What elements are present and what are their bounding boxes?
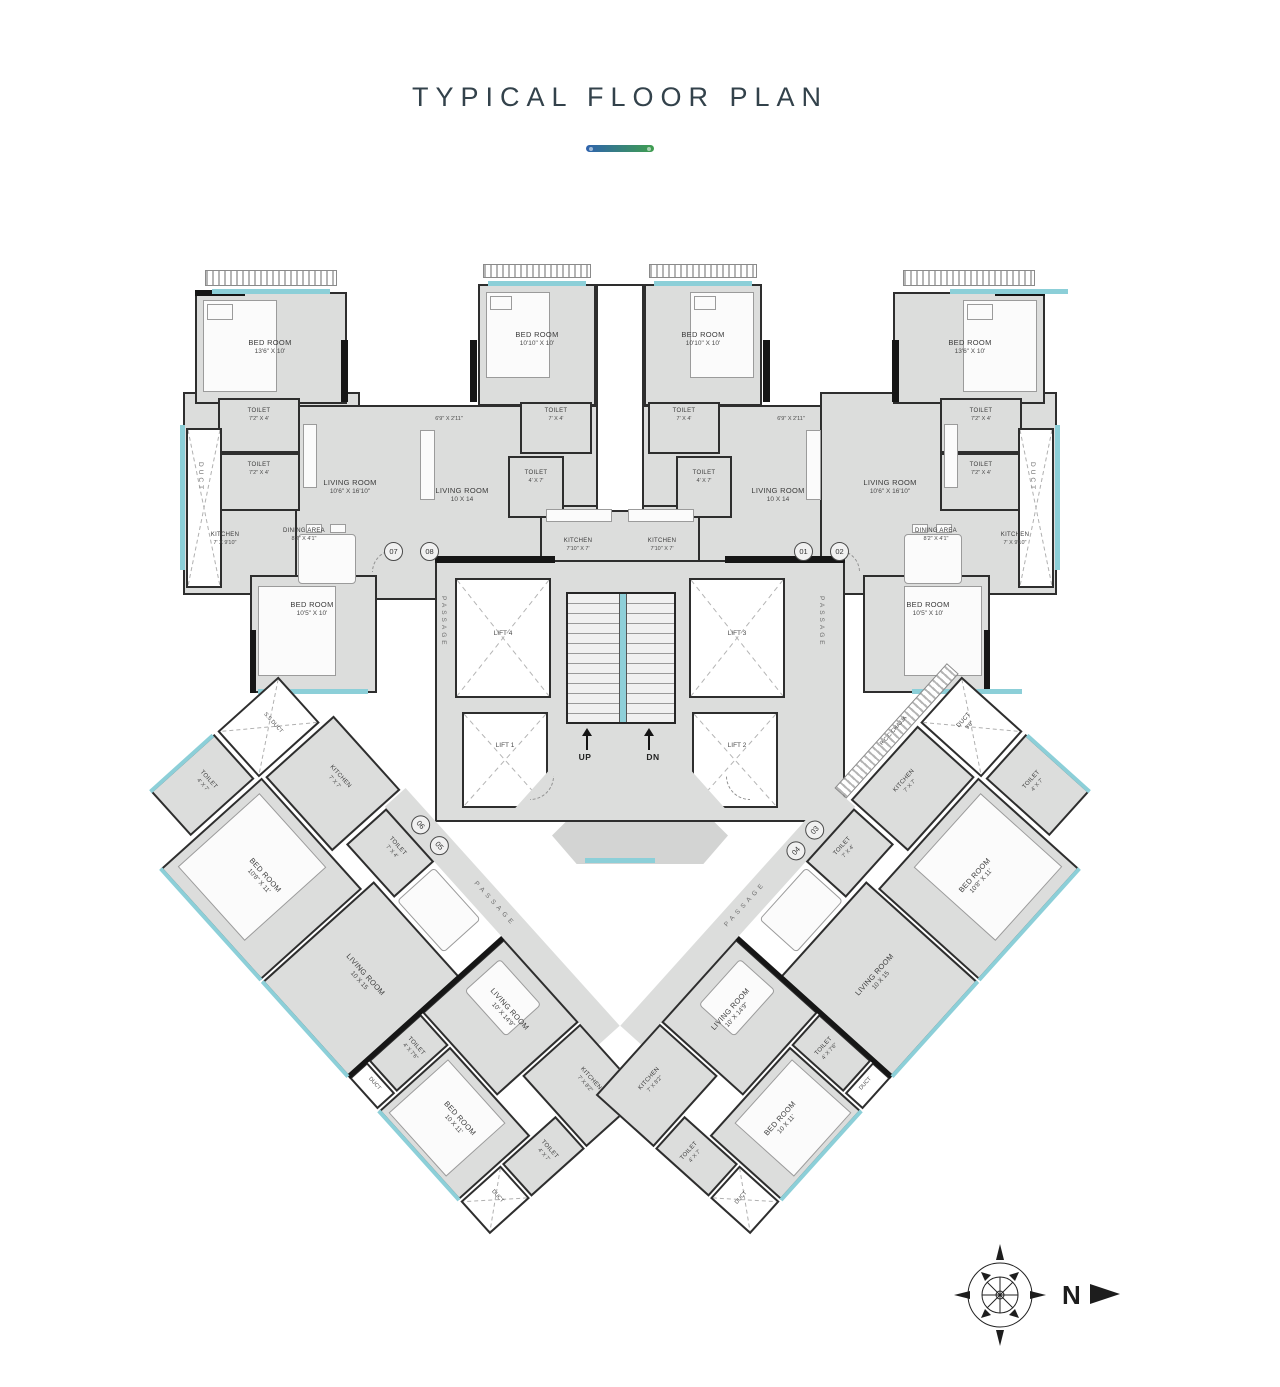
- chajja-hatch: [483, 264, 591, 278]
- duct-cross-icon: [1020, 430, 1052, 586]
- room-u07-toilet-a: [218, 398, 300, 453]
- title-divider: [586, 145, 654, 152]
- room-lift-3: [689, 578, 785, 698]
- bed: [963, 300, 1037, 392]
- sofa: [420, 430, 435, 500]
- window: [654, 281, 752, 286]
- wall-segment: [725, 556, 845, 563]
- lift-cross-icon: [457, 580, 549, 696]
- room-u07-duct: [186, 428, 222, 588]
- lift-cross-icon: [691, 580, 783, 696]
- label-passage-right: PASSAGE: [818, 596, 825, 648]
- wall-segment: [435, 556, 555, 563]
- window: [488, 281, 586, 286]
- bed: [258, 586, 336, 676]
- sofa: [944, 424, 958, 488]
- room-u08-toilet-a: [520, 402, 592, 454]
- north-arrow-icon: [1090, 1284, 1120, 1304]
- room-u07-toilet-b: [218, 453, 300, 511]
- chair: [306, 524, 322, 533]
- kitchen-counter: [546, 509, 612, 522]
- down-arrow-icon: [648, 728, 654, 750]
- stair-rail: [619, 594, 627, 722]
- room-center-shaft: [596, 284, 644, 512]
- north-label: N: [1062, 1280, 1081, 1310]
- kitchen-counter: [628, 509, 694, 522]
- window: [1055, 425, 1060, 570]
- page-title: TYPICAL FLOOR PLAN: [0, 82, 1240, 113]
- dining-table: [298, 534, 356, 584]
- window: [585, 858, 655, 863]
- room-u01-toilet-a: [648, 402, 720, 454]
- divider-dot-left: [589, 147, 593, 151]
- wall-segment: [250, 630, 256, 693]
- staircase: [566, 592, 676, 724]
- unit-number-02: 02: [830, 542, 849, 561]
- chair: [936, 524, 952, 533]
- room-u02-duct: [1018, 428, 1054, 588]
- up-arrow-icon: [586, 728, 592, 750]
- dining-table: [904, 534, 962, 584]
- chajja-hatch: [903, 270, 1035, 286]
- bed: [904, 586, 982, 676]
- window: [950, 289, 1068, 294]
- room-lift-4: [455, 578, 551, 698]
- unit-number-07: 07: [384, 542, 403, 561]
- window: [180, 425, 185, 570]
- chajja-hatch: [649, 264, 757, 278]
- window: [212, 289, 330, 294]
- wall-segment: [341, 340, 348, 402]
- chair: [330, 524, 346, 533]
- wall-segment: [892, 340, 899, 402]
- wall-segment: [984, 630, 990, 693]
- bed: [690, 292, 754, 378]
- label-passage-left: PASSAGE: [440, 596, 447, 648]
- chair: [912, 524, 928, 533]
- sofa: [303, 424, 317, 488]
- label-u02-duct: DUCT: [1029, 462, 1036, 492]
- floor-plan-page: { "title": "TYPICAL FLOOR PLAN", "compas…: [0, 0, 1280, 1387]
- chajja-hatch: [205, 270, 337, 286]
- bed: [203, 300, 277, 392]
- bed: [486, 292, 550, 378]
- wall-segment: [763, 340, 770, 402]
- unit-number-08: 08: [420, 542, 439, 561]
- compass-rose-icon: N: [950, 1240, 1130, 1355]
- wall-segment: [470, 340, 477, 402]
- label-u07-duct: DUCT: [197, 462, 204, 492]
- divider-dot-right: [647, 147, 651, 151]
- unit-number-01: 01: [794, 542, 813, 561]
- duct-cross-icon: [188, 430, 220, 586]
- sofa: [806, 430, 821, 500]
